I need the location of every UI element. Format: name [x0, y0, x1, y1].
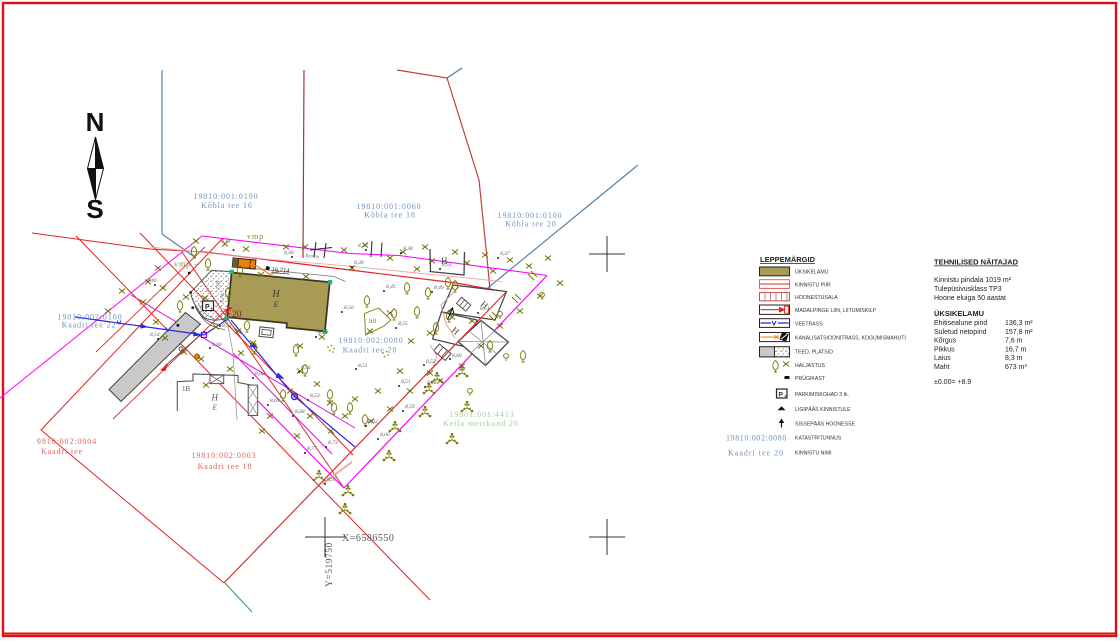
svg-text:8,56: 8,56 [344, 305, 354, 311]
svg-text:8,77: 8,77 [307, 446, 317, 452]
svg-text:±0.00= +8.9: ±0.00= +8.9 [934, 379, 971, 386]
svg-text:8,51: 8,51 [480, 306, 490, 312]
svg-text:KATASTRITUNNUS: KATASTRITUNNUS [795, 436, 842, 442]
svg-text:1B: 1B [182, 385, 191, 393]
svg-text:8,68: 8,68 [295, 409, 305, 415]
svg-text:8,51: 8,51 [358, 363, 368, 369]
svg-text:8,44: 8,44 [221, 238, 231, 245]
svg-text:Tulepüsivusklass TP3: Tulepüsivusklass TP3 [934, 286, 1002, 293]
svg-text:136,3 m²: 136,3 m² [1005, 320, 1033, 327]
svg-text:H: H [211, 393, 219, 403]
svg-text:19810:002:0080: 19810:002:0080 [338, 336, 403, 345]
svg-text:Keila metskond 26: Keila metskond 26 [443, 419, 519, 428]
svg-text:Ehitisealune pind: Ehitisealune pind [934, 320, 987, 327]
svg-text:8,49: 8,49 [434, 284, 444, 291]
svg-text:Suletud netopind: Suletud netopind [934, 329, 987, 336]
svg-text:HALJASTUS: HALJASTUS [795, 363, 826, 369]
svg-text:19801:001:4413: 19801:001:4413 [449, 410, 514, 419]
svg-text:VEETRASS: VEETRASS [795, 321, 823, 327]
svg-text:8,53: 8,53 [222, 323, 232, 329]
svg-text:KINNISTU PIIR: KINNISTU PIIR [795, 282, 831, 288]
svg-text:Kõbla tee 16: Kõbla tee 16 [201, 201, 253, 210]
svg-text:TEHNILISED NÄITAJAD: TEHNILISED NÄITAJAD [934, 258, 1019, 267]
svg-text:P: P [205, 304, 210, 311]
svg-text:9810:002:0004: 9810:002:0004 [37, 437, 97, 446]
svg-text:Kaadri tee 20: Kaadri tee 20 [343, 346, 398, 355]
svg-text:157,8 m²: 157,8 m² [1005, 329, 1033, 336]
svg-text:8,95: 8,95 [327, 477, 337, 483]
svg-text:P: P [779, 392, 784, 399]
svg-text:8,38: 8,38 [403, 246, 413, 252]
svg-text:8,53: 8,53 [442, 262, 452, 268]
svg-text:Kaadri tee: Kaadri tee [41, 447, 83, 456]
svg-text:vmp: vmp [247, 232, 264, 241]
svg-text:Kaadri tee 18: Kaadri tee 18 [198, 462, 253, 471]
svg-text:16,7 m: 16,7 m [1005, 346, 1027, 353]
svg-text:8,69: 8,69 [270, 398, 280, 404]
svg-text:SISSEPÄÄS HOONESSE: SISSEPÄÄS HOONESSE [795, 421, 856, 428]
svg-text:Maht: Maht [934, 364, 950, 371]
svg-text:Kõbla tee 20: Kõbla tee 20 [505, 220, 557, 229]
svg-text:8,54: 8,54 [150, 331, 160, 338]
svg-text:HOONESTUSALA: HOONESTUSALA [795, 295, 838, 301]
svg-text:8,53: 8,53 [310, 393, 320, 399]
svg-text:Pikkus: Pikkus [934, 346, 955, 353]
svg-text:8,39: 8,39 [354, 260, 364, 266]
svg-text:Laius: Laius [934, 355, 951, 362]
svg-text:8,56: 8,56 [301, 365, 311, 371]
svg-text:E: E [273, 300, 279, 309]
svg-text:H: H [271, 289, 280, 300]
svg-text:8,60: 8,60 [452, 353, 462, 359]
svg-text:LEPPEMÄRGID: LEPPEMÄRGID [760, 255, 816, 264]
svg-text:Hoone eluiga 50 aastat: Hoone eluiga 50 aastat [934, 295, 1006, 302]
svg-text:X=6586550: X=6586550 [342, 533, 394, 544]
svg-text:KINNISTU NIMI: KINNISTU NIMI [795, 451, 832, 457]
svg-text:Betoon: Betoon [305, 254, 320, 260]
svg-text:N: N [86, 107, 105, 137]
svg-text:ÜKSIKELAMU: ÜKSIKELAMU [795, 269, 829, 276]
svg-text:Kaadri tee 22: Kaadri tee 22 [62, 321, 117, 330]
svg-text:8,55: 8,55 [398, 321, 408, 327]
svg-text:8,51: 8,51 [401, 379, 411, 385]
svg-text:Kaadri tee 20: Kaadri tee 20 [728, 449, 784, 458]
svg-text:8,45: 8,45 [386, 283, 396, 290]
svg-text:8,73: 8,73 [328, 440, 338, 446]
svg-text:8,59: 8,59 [405, 404, 415, 410]
svg-text:673 m³: 673 m³ [1005, 364, 1027, 371]
svg-text:19810:002:0080: 19810:002:0080 [726, 434, 787, 443]
svg-text:vmp -: vmp - [174, 260, 198, 269]
svg-text:19810:002:0003: 19810:002:0003 [191, 451, 256, 460]
svg-text:8,60: 8,60 [380, 432, 390, 438]
svg-text:Kinnistu pindala 1019 m²: Kinnistu pindala 1019 m² [934, 277, 1012, 284]
svg-text:8,37: 8,37 [358, 243, 368, 249]
svg-text:19810:001:0190: 19810:001:0190 [193, 192, 258, 201]
svg-text:8,58: 8,58 [427, 380, 437, 386]
svg-text:PRÜGIKAST: PRÜGIKAST [795, 375, 826, 382]
svg-text:8,3 m: 8,3 m [1005, 355, 1023, 362]
svg-text:LIGIPÄÄS KINNISTULE: LIGIPÄÄS KINNISTULE [795, 406, 851, 413]
svg-text:8,52: 8,52 [426, 359, 436, 365]
svg-text:8,60: 8,60 [212, 342, 222, 348]
svg-text:8,37: 8,37 [500, 251, 510, 257]
svg-text:8,59: 8,59 [318, 330, 328, 336]
svg-text:7,6 m: 7,6 m [1005, 338, 1023, 345]
svg-text:Y=519750: Y=519750 [325, 542, 335, 587]
svg-text:PARKIMISKOHAD 3 tk.: PARKIMISKOHAD 3 tk. [795, 392, 849, 398]
svg-text:Kõrgus: Kõrgus [934, 338, 957, 345]
svg-text:ÜKSIKELAMU: ÜKSIKELAMU [934, 309, 984, 318]
svg-text:8,46: 8,46 [284, 249, 294, 256]
svg-text:8,62: 8,62 [368, 419, 378, 425]
svg-text:E: E [212, 404, 218, 412]
svg-text:20: 20 [232, 310, 242, 320]
svg-text:S: S [86, 194, 103, 224]
svg-text:TEED, PLATSID: TEED, PLATSID [795, 350, 833, 356]
svg-text:KANALISATSIOONITRASS, KOGUMISM: KANALISATSIOONITRASS, KOGUMISMAHUTI [795, 335, 906, 341]
svg-text:lill: lill [369, 318, 376, 325]
svg-text:8,40: 8,40 [147, 277, 157, 284]
svg-text:8,60: 8,60 [255, 371, 265, 377]
svg-text:Kõbla tee 18: Kõbla tee 18 [364, 211, 416, 220]
svg-text:MADALPINGE LIIN, LIITUMISKILP: MADALPINGE LIIN, LIITUMISKILP [795, 308, 877, 314]
